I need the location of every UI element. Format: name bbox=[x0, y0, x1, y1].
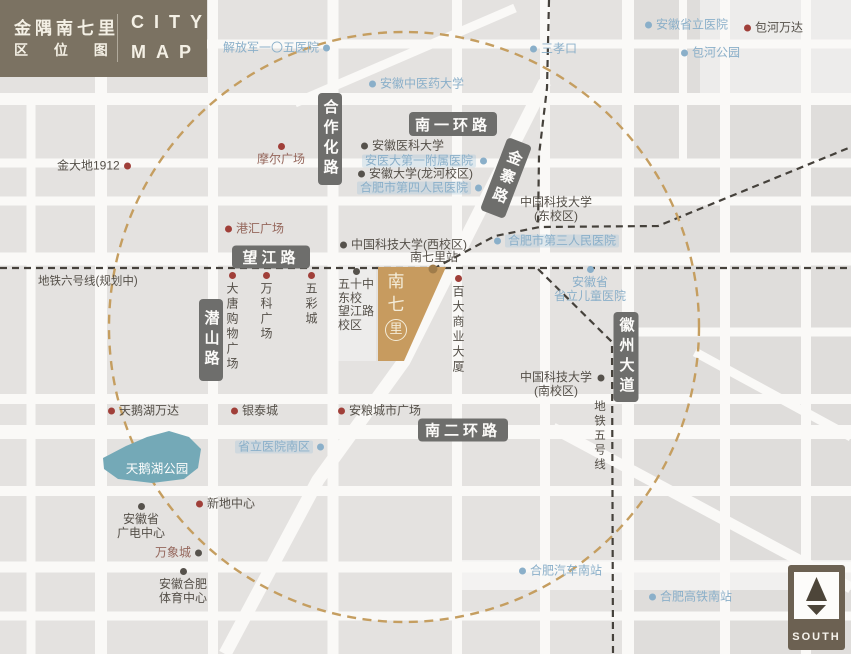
anhui-broadcast-center-dot bbox=[137, 503, 144, 510]
project-logo: 南 七 里 bbox=[385, 273, 407, 341]
page-subtitle: 区 位 图 bbox=[14, 40, 119, 60]
mixc-mall: 万象城 bbox=[155, 547, 202, 560]
mixc-mall-label: 万象城 bbox=[155, 547, 191, 560]
datang-shopping-plaza-label: 大唐购物广场 bbox=[225, 282, 239, 372]
ustc-south-campus: 中国科技大学(南校区) bbox=[520, 371, 592, 398]
anhui-tcm-university-label: 安徽中医药大学 bbox=[380, 78, 464, 91]
road-label-south-2nd-ring-rd: 南二环路 bbox=[418, 419, 508, 442]
page-title: 金隅南七里 bbox=[14, 14, 119, 39]
provincial-hospital-south-dot bbox=[317, 444, 324, 451]
anhui-university-longhe-campus: 安徽大学(龙河校区) bbox=[358, 168, 473, 181]
jindadi-1912-dot bbox=[124, 163, 131, 170]
metro-line-6-label: 地铁六号线(规划中) bbox=[38, 276, 138, 289]
pla-105-hospital-dot bbox=[323, 45, 330, 52]
no50-middle-school-east-dot bbox=[352, 268, 359, 275]
provincial-hospital-south-label: 省立医院南区 bbox=[235, 441, 313, 454]
moer-plaza-dot bbox=[277, 143, 284, 150]
baohe-park-dot bbox=[681, 50, 688, 57]
anliang-city-plaza: 安粮城市广场 bbox=[338, 405, 421, 418]
no50-middle-school-east: 五十中东校望江路校区 bbox=[338, 268, 374, 332]
ustc-south-campus-dot bbox=[598, 375, 605, 382]
moer-plaza-label: 摩尔广场 bbox=[257, 153, 305, 166]
baida-commercial-building-dot bbox=[455, 275, 462, 282]
hefei-4th-peoples-hospital: 合肥市第四人民医院 bbox=[357, 182, 482, 195]
baohe-wanda-dot bbox=[744, 25, 751, 32]
basemap-svg bbox=[0, 0, 851, 654]
provincial-childrens-hospital: 安徽省省立儿童医院 bbox=[554, 266, 626, 303]
ustc-east-campus: 中国科技大学(东校区) bbox=[520, 196, 592, 223]
baohe-wanda-label: 包河万达 bbox=[755, 22, 803, 35]
no50-middle-school-east-label: 五十中东校望江路校区 bbox=[338, 278, 374, 332]
provincial-childrens-hospital-dot bbox=[586, 266, 593, 273]
ganghui-plaza-label: 港汇广场 bbox=[236, 223, 284, 236]
street-grid bbox=[0, 0, 851, 654]
header-card: 金隅南七里 区 位 图 CITY MAP bbox=[0, 0, 207, 77]
compass-panel bbox=[794, 572, 839, 619]
compass-needle-icon bbox=[794, 572, 839, 619]
baida-commercial-building-label: 百大商业大厦 bbox=[451, 285, 465, 375]
sanxiaokou-dot bbox=[530, 46, 537, 53]
hefei-south-railway-station: 合肥高铁南站 bbox=[649, 591, 732, 604]
metro-line-5-label: 地铁五号线 bbox=[592, 400, 606, 473]
pla-105-hospital: 解放军一〇五医院 bbox=[223, 42, 330, 55]
hefei-4th-peoples-hospital-label: 合肥市第四人民医院 bbox=[357, 182, 471, 195]
yintai-city: 银泰城 bbox=[231, 405, 278, 418]
brand-map: MAP bbox=[131, 42, 201, 63]
swan-lake-wanda-label: 天鹅湖万达 bbox=[119, 405, 179, 418]
anhui-hefei-sports-center-dot bbox=[179, 568, 186, 575]
anhui-hefei-sports-center: 安徽合肥体育中心 bbox=[159, 568, 207, 605]
metro-line-6-label-label: 地铁六号线(规划中) bbox=[38, 276, 138, 289]
nanqili-station-label-label: 南七里站 bbox=[410, 251, 458, 264]
hefei-south-bus-station: 合肥汽车南站 bbox=[519, 565, 602, 578]
swan-lake-park-label: 天鹅湖公园 bbox=[126, 463, 189, 476]
vanke-plaza-dot bbox=[263, 272, 270, 279]
baohe-park-label: 包河公园 bbox=[692, 47, 740, 60]
anhui-provincial-hospital: 安徽省立医院 bbox=[645, 19, 728, 32]
jindadi-1912-label: 金大地1912 bbox=[57, 160, 120, 173]
hefei-4th-peoples-hospital-dot bbox=[475, 185, 482, 192]
provincial-childrens-hospital-label: 安徽省省立儿童医院 bbox=[554, 276, 626, 303]
nanqili-station-dot bbox=[429, 265, 438, 274]
mixc-mall-dot bbox=[195, 550, 202, 557]
hefei-3rd-peoples-hospital: 合肥市第三人民医院 bbox=[494, 235, 619, 248]
xindi-center: 新地中心 bbox=[196, 498, 255, 511]
header-divider bbox=[117, 14, 118, 62]
datang-shopping-plaza: 大唐购物广场 bbox=[225, 272, 239, 372]
hefei-south-bus-station-label: 合肥汽车南站 bbox=[530, 565, 602, 578]
ustc-west-campus-dot bbox=[340, 242, 347, 249]
anhui-tcm-university: 安徽中医药大学 bbox=[369, 78, 464, 91]
anliang-city-plaza-label: 安粮城市广场 bbox=[349, 405, 421, 418]
swan-lake-park-label-label: 天鹅湖公园 bbox=[126, 463, 189, 476]
anhui-broadcast-center: 安徽省广电中心 bbox=[117, 503, 165, 540]
pla-105-hospital-label: 解放军一〇五医院 bbox=[223, 42, 319, 55]
hefei-south-bus-station-dot bbox=[519, 568, 526, 575]
baohe-park: 包河公园 bbox=[681, 47, 740, 60]
project-logo-char-circled: 里 bbox=[385, 319, 407, 341]
wucai-city-label: 五彩城 bbox=[304, 282, 318, 327]
anhui-university-longhe-campus-dot bbox=[358, 171, 365, 178]
road-label-huizhou-ave: 徽州大道 bbox=[614, 312, 639, 402]
anhui-provincial-hospital-label: 安徽省立医院 bbox=[656, 19, 728, 32]
vanke-plaza: 万科广场 bbox=[259, 272, 273, 342]
yintai-city-dot bbox=[231, 408, 238, 415]
xindi-center-label: 新地中心 bbox=[207, 498, 255, 511]
hefei-3rd-peoples-hospital-dot bbox=[494, 238, 501, 245]
ustc-south-campus-dot-dot bbox=[598, 375, 605, 382]
ustc-east-campus-label: 中国科技大学(东校区) bbox=[520, 196, 592, 223]
sanxiaokou: 三孝口 bbox=[530, 43, 577, 56]
swan-lake-wanda: 天鹅湖万达 bbox=[108, 405, 179, 418]
ganghui-plaza: 港汇广场 bbox=[225, 223, 284, 236]
city-map: 南 七 里 合作化路南一环路金寨路望江路潜山路徽州大道南二环路 解放军一〇五医院… bbox=[0, 0, 851, 654]
nanqili-station-label: 南七里站 bbox=[410, 251, 458, 264]
sanxiaokou-label: 三孝口 bbox=[541, 43, 577, 56]
metro-line-5-label-label: 地铁五号线 bbox=[592, 400, 606, 473]
project-logo-char: 七 bbox=[388, 296, 405, 314]
anhui-tcm-university-dot bbox=[369, 81, 376, 88]
hefei-3rd-peoples-hospital-label: 合肥市第三人民医院 bbox=[505, 235, 619, 248]
road-label-south-1st-ring-rd: 南一环路 bbox=[409, 112, 497, 136]
datang-shopping-plaza-dot bbox=[229, 272, 236, 279]
provincial-hospital-south: 省立医院南区 bbox=[235, 441, 324, 454]
moer-plaza: 摩尔广场 bbox=[257, 143, 305, 166]
anyida-first-affiliated-hospital-dot bbox=[480, 158, 487, 165]
anhui-medical-university: 安徽医科大学 bbox=[361, 140, 444, 153]
xindi-center-dot bbox=[196, 501, 203, 508]
anhui-broadcast-center-label: 安徽省广电中心 bbox=[117, 513, 165, 540]
ustc-south-campus-label: 中国科技大学(南校区) bbox=[520, 371, 592, 398]
compass: SOUTH bbox=[788, 565, 845, 650]
road-label-wangjiang-rd: 望江路 bbox=[232, 246, 310, 269]
vanke-plaza-label: 万科广场 bbox=[259, 282, 273, 342]
anhui-provincial-hospital-dot bbox=[645, 22, 652, 29]
project-logo-char: 南 bbox=[388, 273, 405, 291]
road-label-qianshan-rd: 潜山路 bbox=[199, 299, 223, 381]
swan-lake-wanda-dot bbox=[108, 408, 115, 415]
anhui-medical-university-label: 安徽医科大学 bbox=[372, 140, 444, 153]
baida-commercial-building: 百大商业大厦 bbox=[451, 275, 465, 375]
brand-city: CITY bbox=[131, 12, 212, 33]
compass-south-label: SOUTH bbox=[788, 631, 845, 643]
anhui-medical-university-dot bbox=[361, 143, 368, 150]
hefei-south-railway-station-dot bbox=[649, 594, 656, 601]
jindadi-1912: 金大地1912 bbox=[57, 160, 131, 173]
baohe-wanda: 包河万达 bbox=[744, 22, 803, 35]
anhui-hefei-sports-center-label: 安徽合肥体育中心 bbox=[159, 578, 207, 605]
road-label-hezuohua-rd: 合作化路 bbox=[318, 93, 342, 185]
anhui-university-longhe-campus-label: 安徽大学(龙河校区) bbox=[369, 168, 473, 181]
wucai-city-dot bbox=[308, 272, 315, 279]
wucai-city: 五彩城 bbox=[304, 272, 318, 327]
anliang-city-plaza-dot bbox=[338, 408, 345, 415]
hefei-south-railway-station-label: 合肥高铁南站 bbox=[660, 591, 732, 604]
yintai-city-label: 银泰城 bbox=[242, 405, 278, 418]
ganghui-plaza-dot bbox=[225, 226, 232, 233]
